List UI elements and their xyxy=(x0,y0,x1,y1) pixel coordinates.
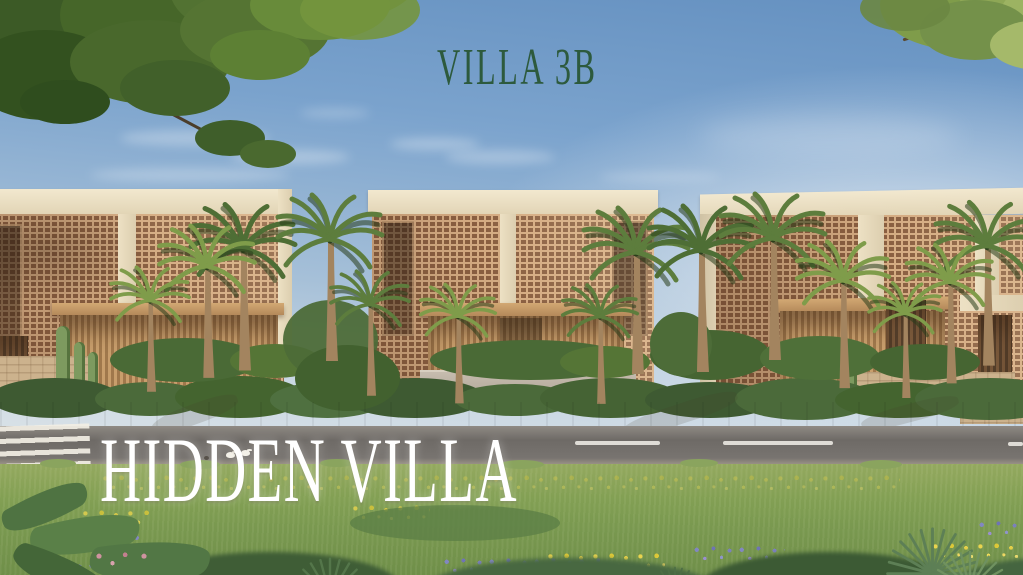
grass-edge xyxy=(40,459,76,468)
project-title: HIDDEN VILLA xyxy=(100,424,518,516)
road-center-dash xyxy=(723,441,833,445)
flower-patch-pink xyxy=(90,545,154,573)
road-center-dash xyxy=(1008,442,1023,446)
road-center-dash xyxy=(575,441,660,445)
leaf-cluster xyxy=(20,80,110,124)
leaf-cluster xyxy=(210,30,310,80)
palm-tree xyxy=(862,280,948,398)
grass-edge xyxy=(680,459,718,467)
grass-edge xyxy=(860,460,902,469)
fan-palm xyxy=(900,522,1023,575)
fan-palm xyxy=(620,545,730,575)
architectural-render: VILLA 3B HIDDEN VILLA xyxy=(0,0,1023,575)
leaf-cluster xyxy=(240,140,296,168)
unit-label: VILLA 3B xyxy=(437,42,597,94)
palm-tree xyxy=(557,282,643,404)
cloud xyxy=(300,108,370,118)
window-recess xyxy=(0,224,22,344)
fan-palm xyxy=(255,528,405,575)
palm-tree xyxy=(415,280,501,405)
cloud xyxy=(445,150,555,164)
leaf-cluster xyxy=(120,60,230,116)
palm-tree xyxy=(325,262,415,402)
cloud xyxy=(390,138,480,150)
palm-tree xyxy=(105,258,195,398)
